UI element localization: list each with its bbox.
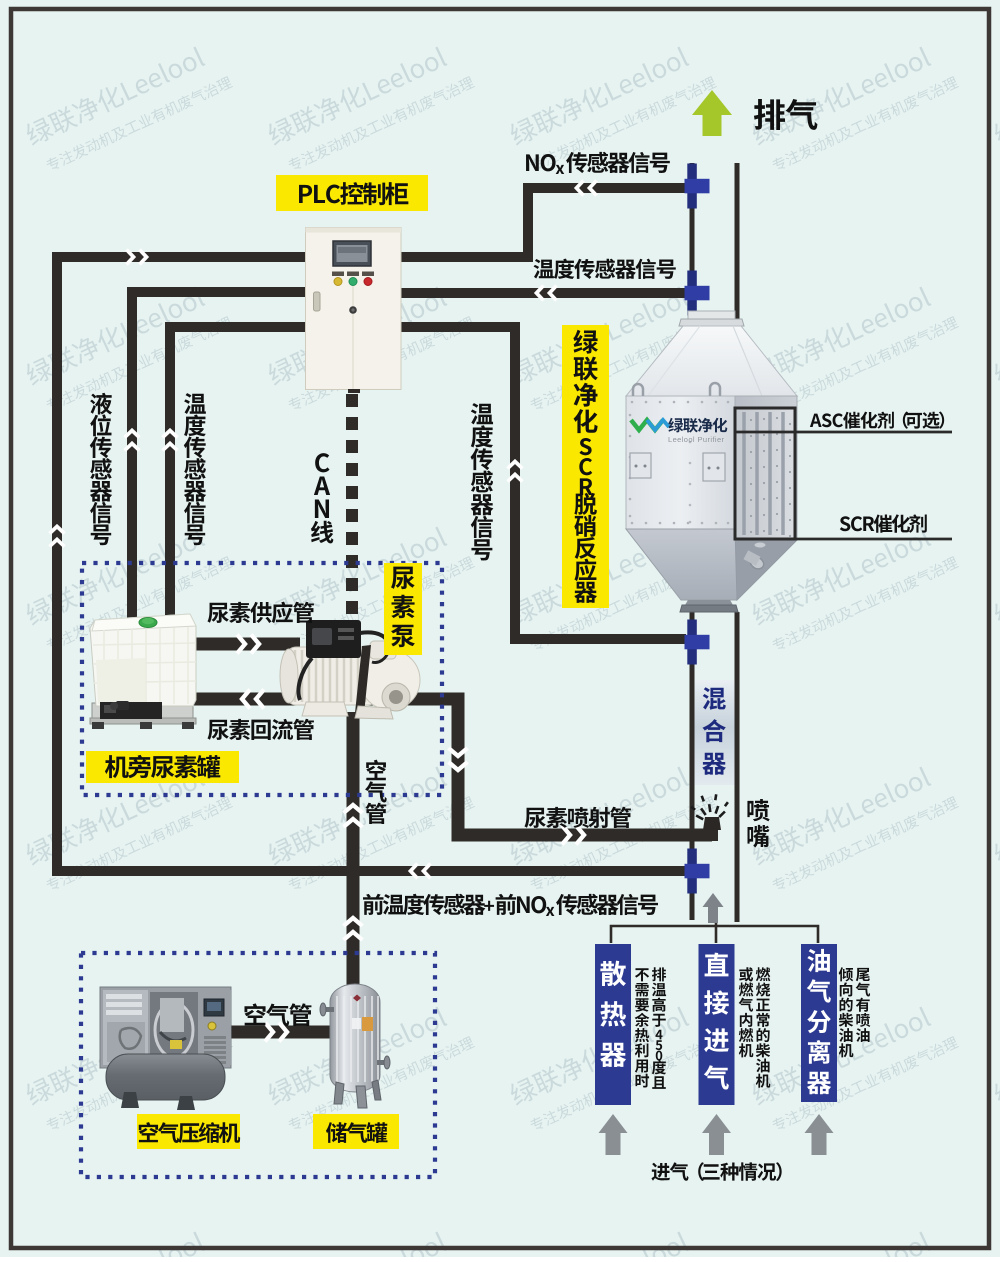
svg-text:Leelool Purifier: Leelool Purifier: [668, 435, 725, 444]
